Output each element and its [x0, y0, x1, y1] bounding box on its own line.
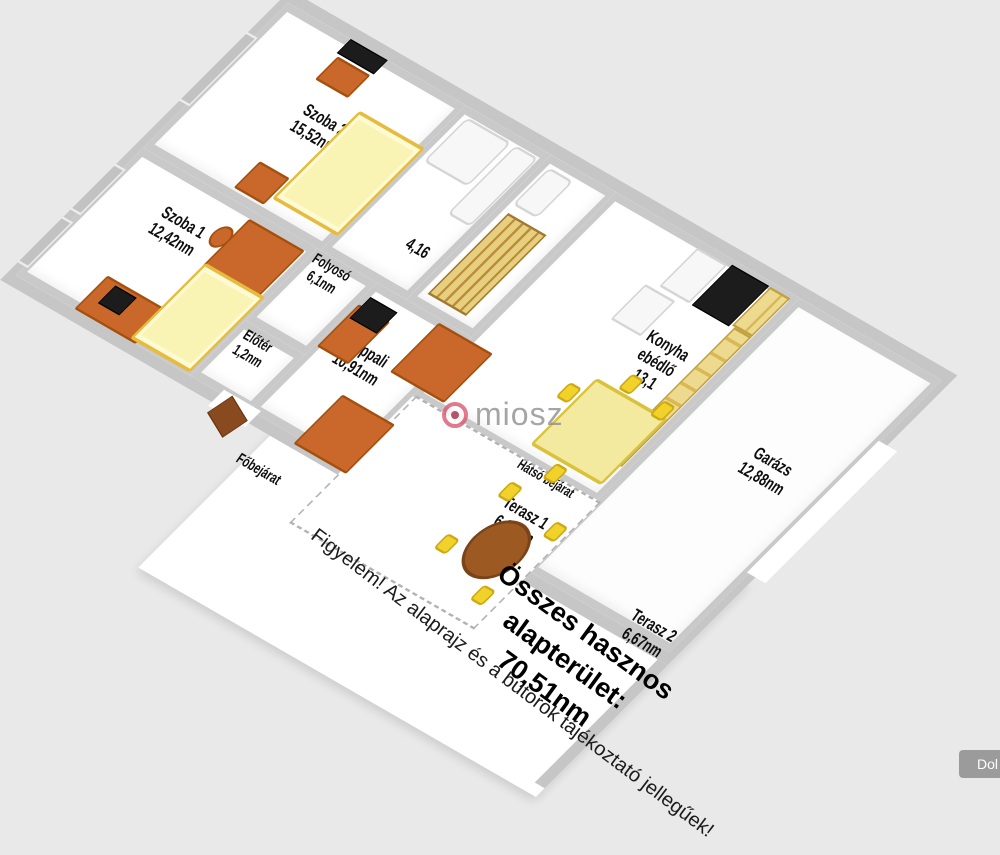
watermark-logo-icon [442, 402, 468, 428]
watermark-text: miosz [475, 396, 564, 433]
watermark: miosz [442, 396, 564, 433]
corner-button[interactable]: Dol [959, 750, 1000, 778]
